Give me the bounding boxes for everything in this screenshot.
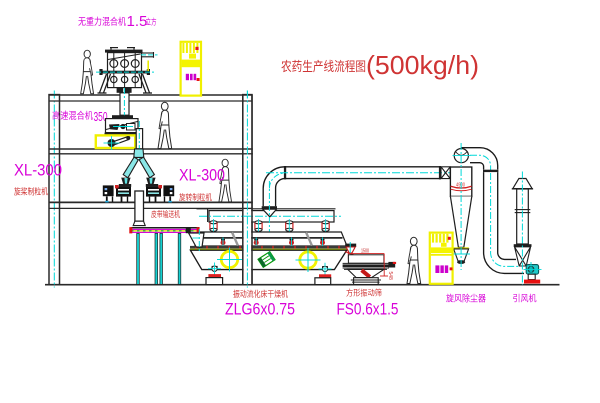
svg-text:引风机: 引风机 — [513, 293, 537, 304]
svg-text:1.5: 1.5 — [127, 13, 148, 30]
svg-text:旋桨制粒机: 旋桨制粒机 — [14, 187, 48, 197]
svg-text:XL-300: XL-300 — [179, 167, 225, 185]
svg-text:方形振动筛: 方形振动筛 — [346, 288, 382, 298]
svg-text:548: 548 — [387, 272, 393, 281]
svg-text:(500kg/h): (500kg/h) — [366, 50, 479, 80]
svg-text:旋风除尘器: 旋风除尘器 — [446, 293, 486, 304]
svg-text:旋转制粒机: 旋转制粒机 — [179, 192, 212, 202]
svg-text:XL-300: XL-300 — [14, 162, 62, 180]
svg-text:FS0.6x1.5: FS0.6x1.5 — [337, 300, 399, 319]
svg-text:高速混合机: 高速混合机 — [52, 110, 93, 122]
svg-text:4900: 4900 — [456, 182, 465, 188]
svg-text:振动流化床干燥机: 振动流化床干燥机 — [233, 289, 288, 299]
svg-text:1500: 1500 — [361, 249, 369, 255]
svg-text:农药生产线流程图: 农药生产线流程图 — [281, 59, 366, 74]
svg-text:无重力混合机: 无重力混合机 — [78, 16, 126, 28]
svg-text:ZLG6x0.75: ZLG6x0.75 — [225, 300, 295, 319]
svg-text:立方: 立方 — [146, 17, 157, 27]
svg-text:皮带输送机: 皮带输送机 — [151, 209, 180, 219]
